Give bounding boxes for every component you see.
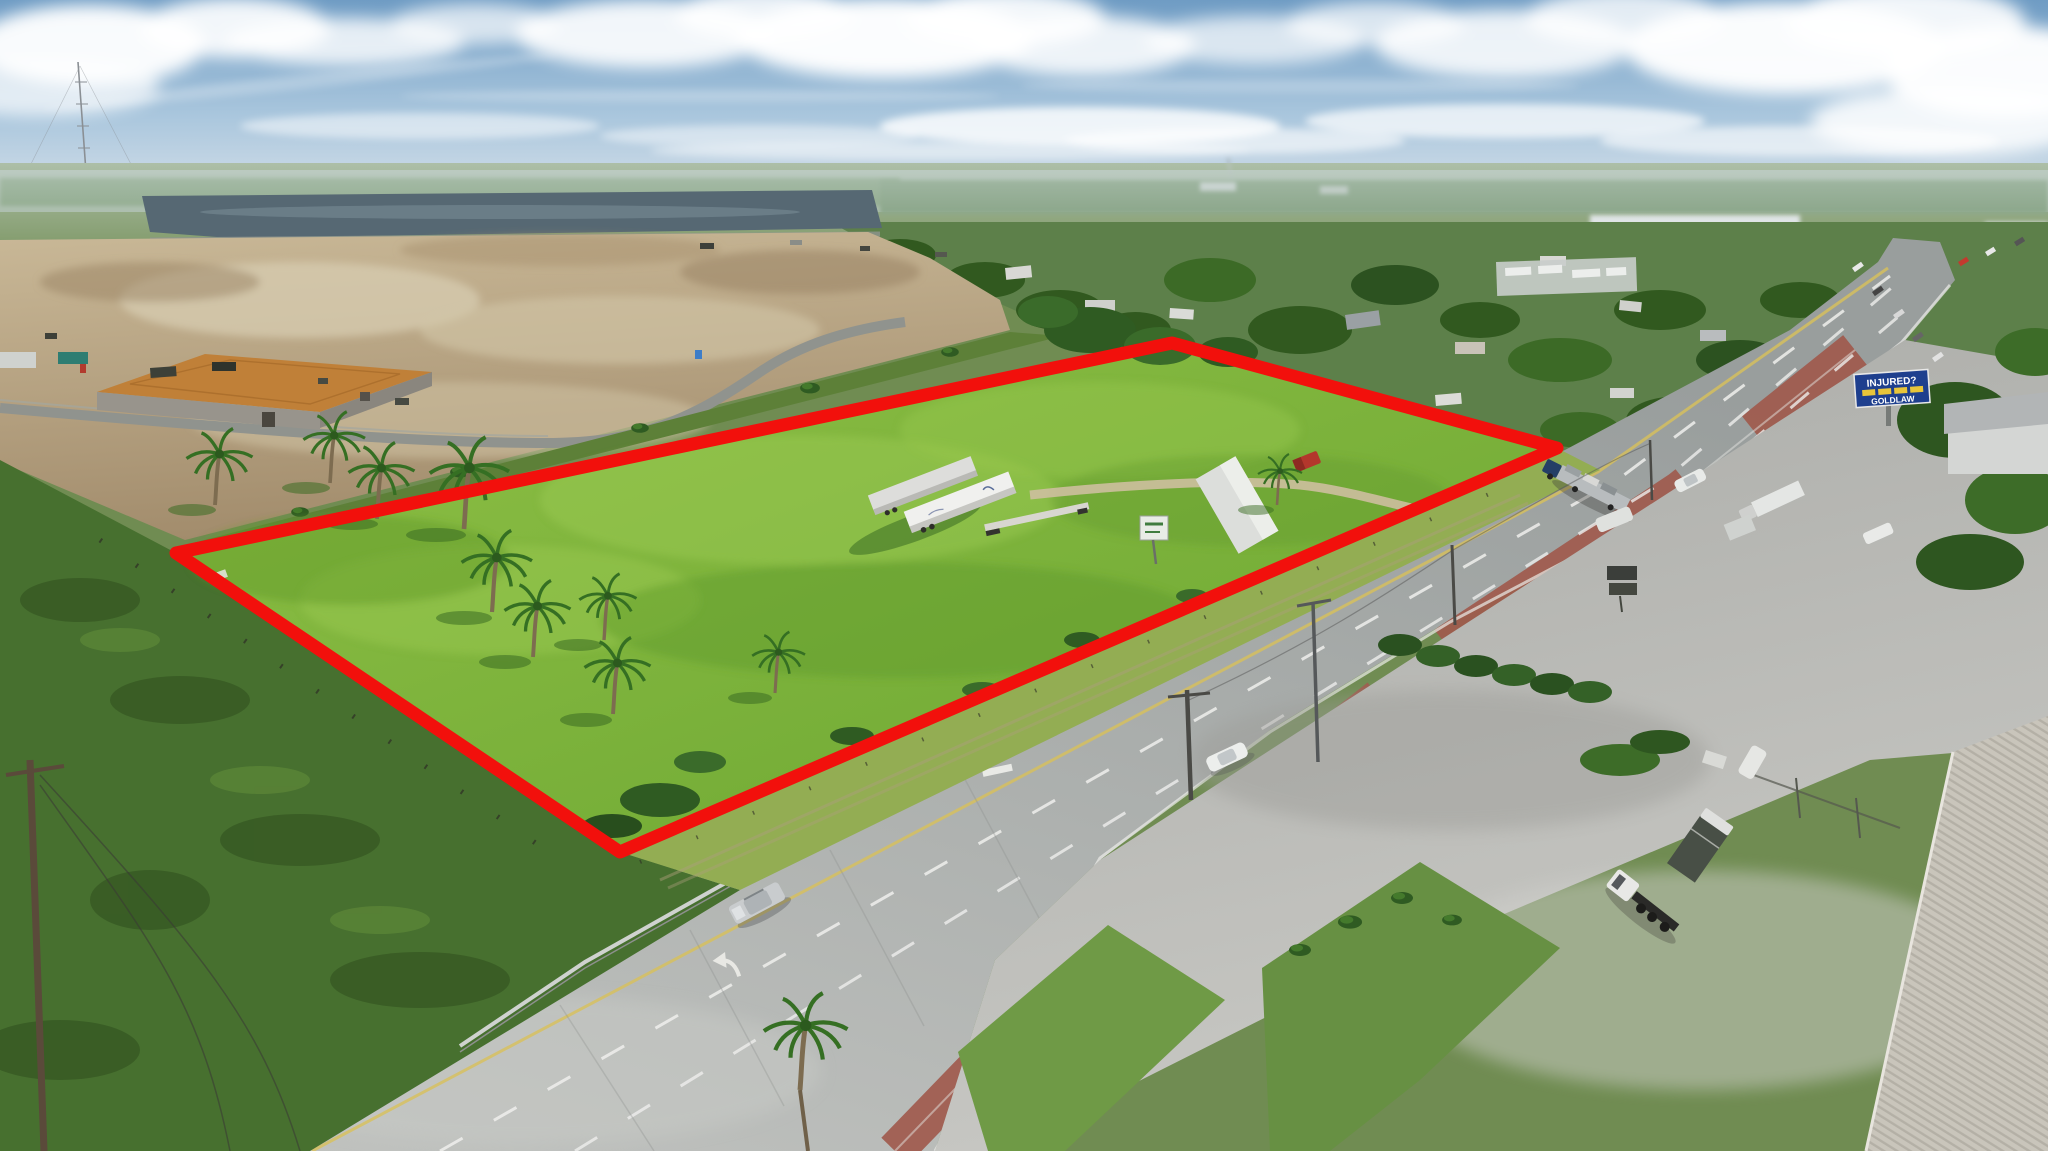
- aerial-photo: INJURED? GOLDLAW: [0, 0, 2048, 1151]
- sky: [0, 0, 2048, 185]
- rv-storage-lot: [1496, 257, 1637, 296]
- retention-pond: [142, 190, 882, 240]
- aerial-photo-canvas: INJURED? GOLDLAW: [0, 0, 2048, 1151]
- frontage-building: [1944, 392, 2048, 474]
